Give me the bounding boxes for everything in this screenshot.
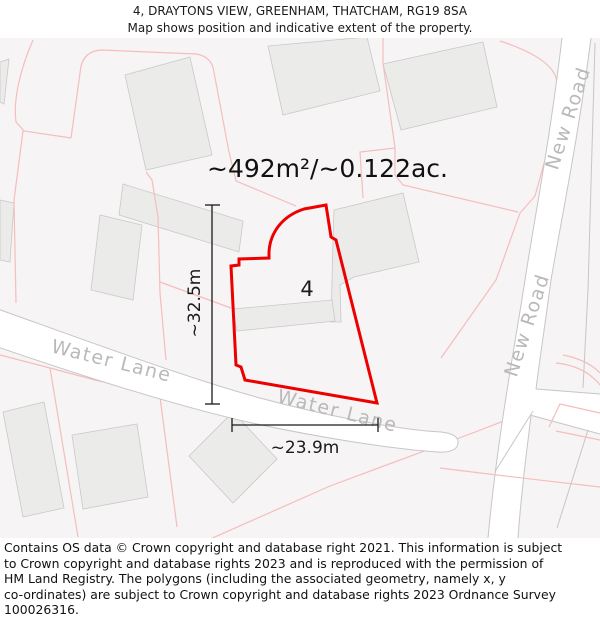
footer-line: co-ordinates) are subject to Crown copyr… [4,587,598,603]
vertical-dimension-label: ~32.5m [185,269,205,338]
map-canvas: Water Lane Water Lane New Road New Road … [0,38,600,538]
copyright-footer: Contains OS data © Crown copyright and d… [4,540,598,618]
building [91,215,142,300]
area-label: ~492m²/~0.122ac. [207,154,448,183]
footer-line: 100026316. [4,602,598,618]
page-title: 4, DRAYTONS VIEW, GREENHAM, THATCHAM, RG… [0,3,600,20]
page-subtitle: Map shows position and indicative extent… [0,20,600,37]
map-header: 4, DRAYTONS VIEW, GREENHAM, THATCHAM, RG… [0,3,600,37]
horizontal-dimension-label: ~23.9m [271,438,340,458]
footer-line: to Crown copyright and database rights 2… [4,556,598,572]
footer-line: Contains OS data © Crown copyright and d… [4,540,598,556]
property-map: Water Lane Water Lane New Road New Road … [0,38,600,538]
building [72,424,148,509]
footer-line: HM Land Registry. The polygons (includin… [4,571,598,587]
plot-number-label: 4 [300,277,313,301]
